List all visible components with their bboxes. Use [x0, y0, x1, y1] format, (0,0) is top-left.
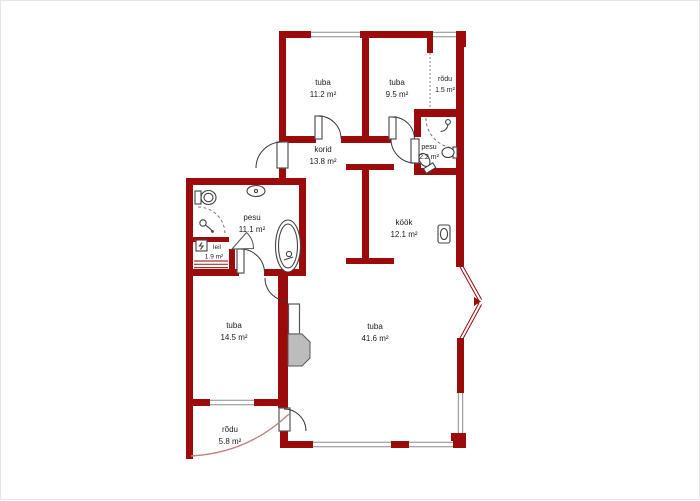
- room-area-leil: 1.9 m²: [205, 254, 224, 261]
- wall-segment: [414, 168, 456, 175]
- room-area-tuba-11-2: 11.2 m²: [310, 90, 337, 99]
- wall-segment: [427, 38, 433, 53]
- sauna-stove-icon: [196, 240, 207, 251]
- wall-segment: [279, 31, 286, 142]
- room-label-tuba-14-5: tuba: [226, 321, 242, 330]
- wall-segment: [229, 249, 235, 269]
- wall-segment: [451, 433, 466, 448]
- wall-segment: [360, 31, 433, 38]
- toilet-icon: [195, 191, 216, 205]
- entrance-door: [256, 142, 288, 168]
- room-label-pesu-2-2: pesu: [421, 144, 436, 151]
- window: [433, 31, 456, 38]
- room-label-pesu-11-1: pesu: [243, 213, 260, 222]
- room-area-rodu-5-8: 5.8 m²: [219, 437, 242, 446]
- floor-plan: tuba 11.2 m² tuba 9.5 m² rõdu 1.5 m² kor…: [0, 0, 700, 500]
- fireplace: [288, 304, 310, 366]
- door-leil: [232, 233, 254, 250]
- room-area-korid: 13.8 m²: [309, 157, 336, 166]
- window: [457, 393, 464, 433]
- room-label-rodu-1-5: rõdu: [438, 76, 452, 83]
- wall-segment: [278, 276, 288, 408]
- wall-segment: [186, 178, 306, 185]
- door-tuba-9-5: [389, 117, 415, 139]
- window: [313, 441, 391, 448]
- wall-segment: [346, 164, 394, 170]
- room-label-korid: korid: [314, 145, 331, 154]
- shower-mixer-icon: [200, 220, 214, 233]
- wall-segment: [346, 258, 394, 264]
- wall-segment: [457, 338, 464, 393]
- wall-segment: [414, 109, 456, 117]
- wall-segment: [341, 136, 362, 143]
- balcony-edge-line: [191, 414, 289, 456]
- door-tuba-11-2: [315, 116, 341, 139]
- wall-segment: [280, 441, 313, 448]
- room-area-tuba-41-6: 41.6 m²: [361, 334, 388, 343]
- wall-segment: [299, 185, 306, 276]
- room-label-kook: köök: [396, 218, 414, 227]
- wall-segment: [186, 178, 193, 459]
- door-pesu-2-2: [391, 139, 419, 163]
- window: [210, 399, 254, 406]
- room-label-rodu-5-8: rõdu: [222, 425, 238, 434]
- sauna-bench-icon: [194, 261, 228, 268]
- room-area-kook: 12.1 m²: [390, 230, 417, 239]
- wall-segment: [362, 170, 369, 258]
- room-label-tuba-41-6: tuba: [367, 322, 383, 331]
- room-area-rodu-1-5: 1.5 m²: [435, 87, 456, 94]
- window: [311, 31, 360, 38]
- room-area-tuba-14-5: 14.5 m²: [220, 333, 247, 342]
- window: [409, 441, 453, 448]
- room-area-pesu-2-2: 2.2 m²: [419, 154, 440, 161]
- wall-segment: [193, 269, 239, 276]
- room-label-tuba-11-2: tuba: [315, 78, 331, 87]
- sink-icon: [247, 186, 265, 197]
- sink-icon: [442, 147, 457, 158]
- wall-segment: [254, 399, 288, 406]
- room-label-leil: leil: [213, 244, 222, 251]
- wall-segment: [369, 136, 391, 143]
- wall-segment: [362, 38, 369, 143]
- bathtub-icon: [276, 220, 301, 272]
- wall-segment: [279, 168, 286, 178]
- wall-segment: [286, 136, 316, 143]
- room-area-pesu-11-1: 11.1 m²: [239, 225, 266, 234]
- room-area-tuba-9-5: 9.5 m²: [386, 90, 409, 99]
- shower-head-icon: [441, 120, 451, 132]
- wall-segment: [186, 399, 210, 406]
- kitchen-sink-icon: [438, 225, 450, 243]
- room-label-tuba-9-5: tuba: [389, 78, 405, 87]
- wall-segment: [391, 441, 409, 448]
- floor-plan-drawing: tuba 11.2 m² tuba 9.5 m² rõdu 1.5 m² kor…: [1, 1, 700, 501]
